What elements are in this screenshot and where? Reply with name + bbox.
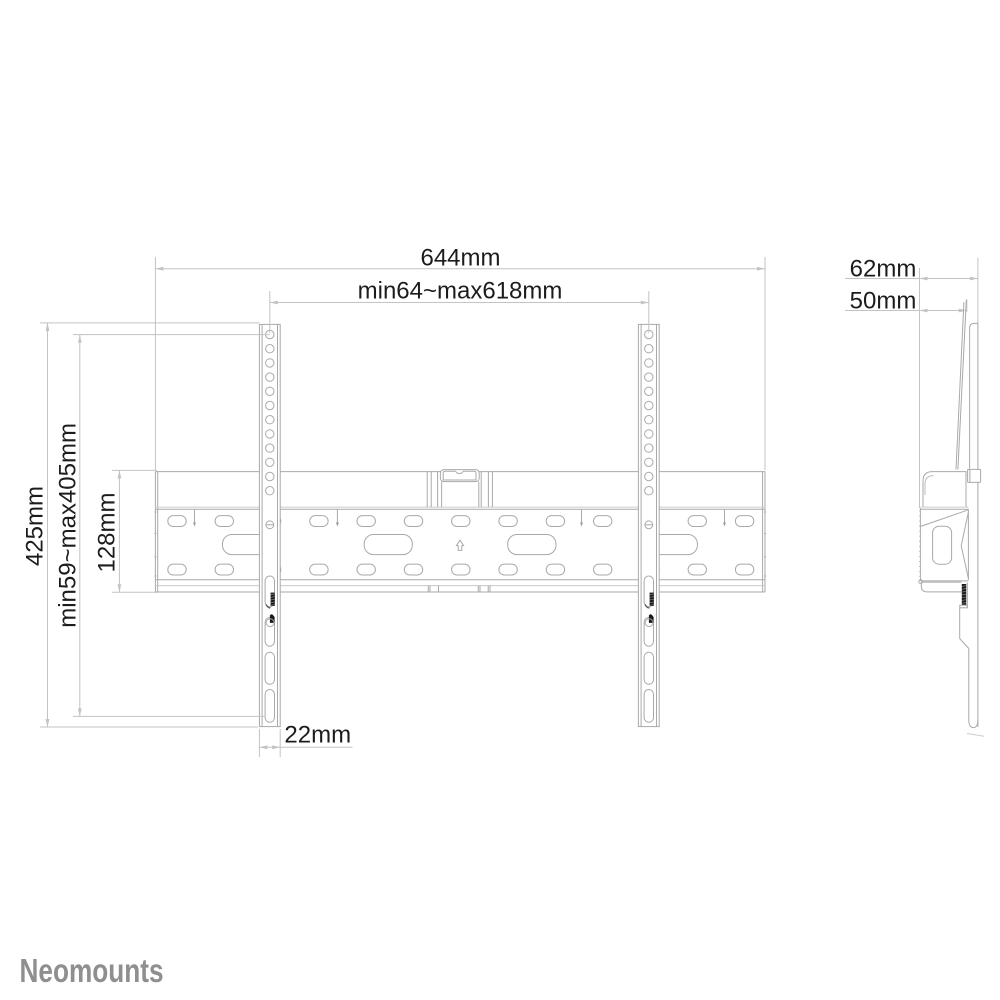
svg-text:22mm: 22mm	[284, 722, 351, 749]
svg-text:Neomounts: Neomounts	[20, 952, 164, 989]
svg-text:425mm: 425mm	[22, 486, 49, 566]
svg-text:644mm: 644mm	[420, 245, 500, 272]
svg-text:min64~max618mm: min64~max618mm	[358, 278, 563, 305]
svg-text:50mm: 50mm	[850, 288, 917, 315]
svg-text:62mm: 62mm	[850, 256, 917, 283]
svg-text:128mm: 128mm	[94, 492, 121, 572]
svg-text:min59~max405mm: min59~max405mm	[55, 423, 82, 628]
